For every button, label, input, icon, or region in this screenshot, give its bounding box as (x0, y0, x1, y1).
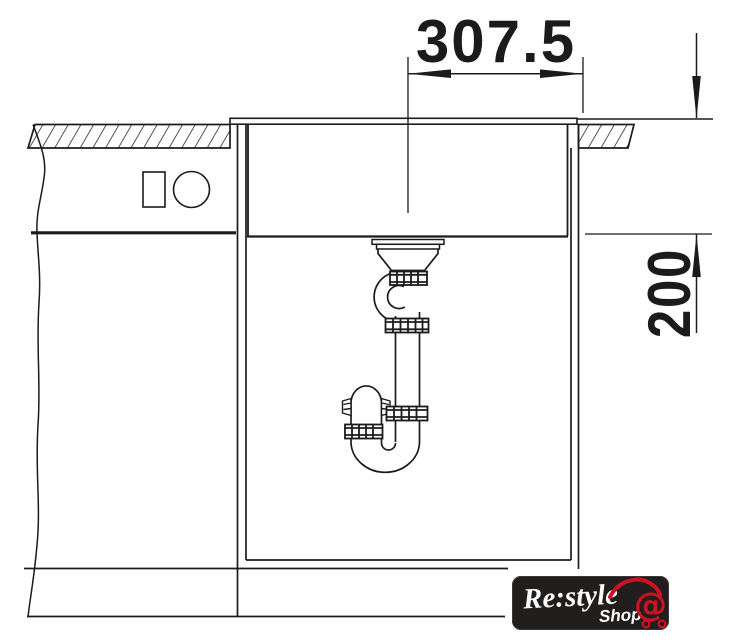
union-nut-pipe (387, 407, 428, 421)
appliance-control-display (143, 172, 165, 207)
trap-u-bend-inner (382, 443, 396, 450)
union-nut-middle (386, 319, 429, 333)
cart-wheel-left (643, 621, 650, 628)
trap-dome-top (351, 386, 382, 402)
dimension-top-value: 307.5 (416, 8, 576, 75)
countertop-left-section (28, 125, 230, 149)
trap-outlet-tabs (343, 399, 391, 416)
cabinet (24, 124, 579, 617)
dimension-right: 200 (585, 33, 712, 338)
technical-drawing: 307.5 200 (0, 0, 731, 640)
cart-wheel-right (659, 621, 666, 628)
cart-at-glyph: @ (634, 585, 667, 624)
break-line-wavy (28, 125, 45, 618)
shopping-cart-at-icon: @ (512, 576, 669, 630)
dimension-right-value: 200 (636, 248, 703, 338)
siphon-assembly (343, 240, 445, 473)
union-nut-upper (390, 272, 427, 286)
countertop (28, 125, 634, 149)
appliance-control-knob (174, 172, 210, 208)
sink-flange (230, 118, 577, 124)
sink (230, 118, 713, 236)
dimension-top: 307.5 (408, 8, 583, 213)
elbow-inner-arc (388, 286, 405, 309)
strainer-flange-inner (377, 244, 440, 249)
sink-installation-diagram: 307.5 200 Re:style Shop @ (0, 0, 731, 640)
countertop-right-section (579, 125, 635, 149)
dimension-right-arrow-down (692, 76, 701, 119)
shop-logo: Re:style Shop @ (512, 576, 669, 630)
union-nut-trap (345, 425, 383, 439)
strainer-cup (378, 249, 438, 271)
trap-u-bend-outer (351, 443, 420, 472)
